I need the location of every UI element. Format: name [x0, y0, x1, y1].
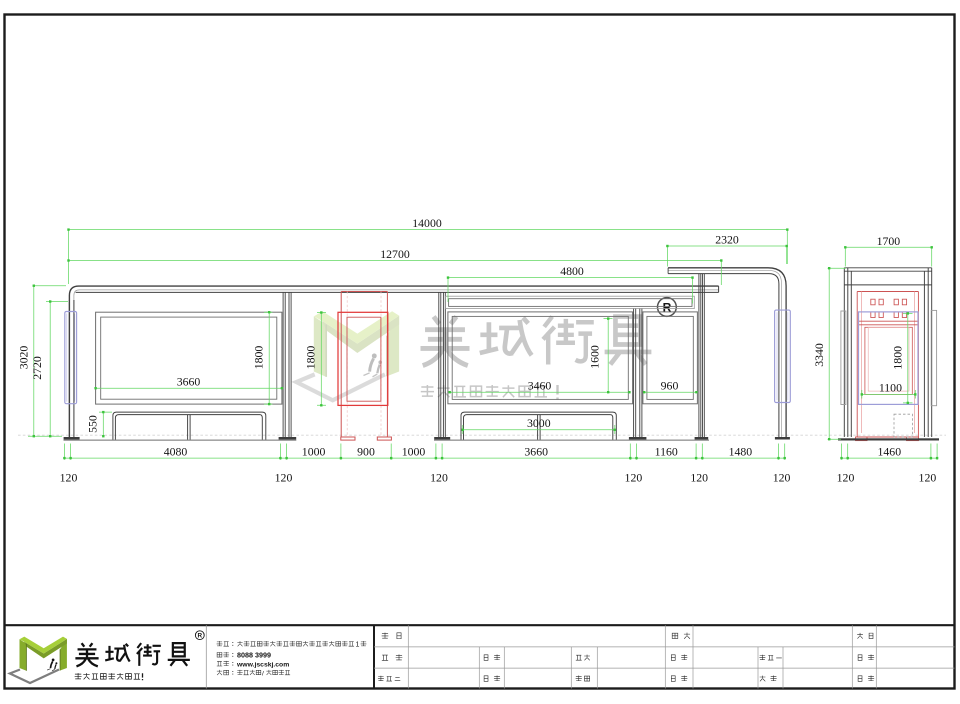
- svg-text:1700: 1700: [877, 234, 901, 248]
- svg-text:120: 120: [919, 470, 937, 484]
- svg-text:1160: 1160: [655, 444, 678, 458]
- svg-text:120: 120: [690, 470, 708, 484]
- svg-text:3460: 3460: [528, 378, 552, 392]
- svg-text:12700: 12700: [380, 247, 410, 261]
- svg-text:3000: 3000: [527, 416, 551, 430]
- svg-text:4080: 4080: [164, 444, 188, 458]
- svg-text:960: 960: [661, 378, 679, 392]
- svg-text:1100: 1100: [879, 381, 902, 395]
- svg-text:www.jscskj.com: www.jscskj.com: [236, 661, 289, 668]
- svg-text:3020: 3020: [16, 346, 30, 370]
- svg-text:R: R: [197, 633, 202, 640]
- svg-text:120: 120: [773, 470, 791, 484]
- svg-text:1000: 1000: [302, 444, 326, 458]
- svg-text:1000: 1000: [402, 444, 426, 458]
- svg-text:14000: 14000: [412, 216, 442, 230]
- svg-text:120: 120: [837, 470, 855, 484]
- svg-text:1800: 1800: [891, 346, 905, 370]
- svg-text:2720: 2720: [30, 356, 44, 380]
- svg-text:550: 550: [86, 415, 100, 433]
- svg-text:900: 900: [357, 444, 375, 458]
- svg-text:120: 120: [430, 470, 448, 484]
- svg-text:120: 120: [625, 470, 643, 484]
- svg-text:3660: 3660: [524, 444, 548, 458]
- svg-text:4800: 4800: [560, 264, 584, 278]
- svg-text:1480: 1480: [729, 444, 753, 458]
- svg-text:120: 120: [60, 470, 78, 484]
- svg-text:/: /: [262, 670, 264, 677]
- svg-text:1460: 1460: [878, 444, 902, 458]
- svg-text:3660: 3660: [177, 374, 201, 388]
- svg-text:2320: 2320: [715, 233, 739, 247]
- svg-text:1800: 1800: [304, 346, 318, 370]
- svg-text:8088 3999: 8088 3999: [237, 651, 271, 660]
- svg-text:120: 120: [275, 470, 293, 484]
- svg-text:1800: 1800: [252, 346, 266, 370]
- svg-text:3340: 3340: [812, 343, 826, 367]
- svg-text:1600: 1600: [588, 345, 602, 369]
- svg-text:1: 1: [356, 642, 360, 649]
